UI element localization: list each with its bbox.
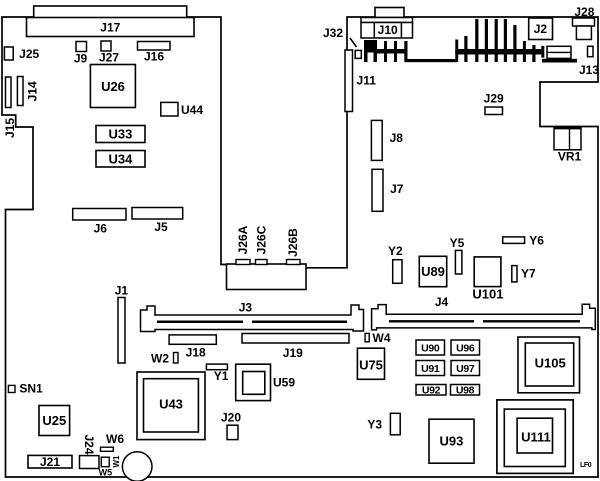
svg-text:U93: U93 <box>439 434 463 449</box>
svg-text:J6: J6 <box>94 222 108 236</box>
svg-text:J26C: J26C <box>255 225 269 254</box>
svg-text:Y1: Y1 <box>214 369 229 383</box>
svg-text:W2: W2 <box>151 351 169 365</box>
svg-text:U92: U92 <box>422 385 441 397</box>
svg-text:J2: J2 <box>534 22 548 36</box>
svg-text:J10: J10 <box>378 23 398 37</box>
svg-text:J24: J24 <box>82 434 96 454</box>
svg-text:J11: J11 <box>357 73 377 87</box>
svg-text:J1: J1 <box>115 283 129 297</box>
svg-text:J26B: J26B <box>286 228 300 257</box>
svg-text:U91: U91 <box>421 363 440 375</box>
svg-text:U59: U59 <box>273 376 295 390</box>
svg-text:U98: U98 <box>456 385 475 397</box>
svg-text:J13: J13 <box>579 63 599 77</box>
svg-text:J26A: J26A <box>236 225 250 254</box>
svg-text:U89: U89 <box>421 264 445 279</box>
svg-text:J15: J15 <box>3 118 17 138</box>
svg-text:U44: U44 <box>181 103 203 117</box>
svg-text:U111: U111 <box>521 429 551 444</box>
svg-text:Y6: Y6 <box>529 234 544 248</box>
svg-text:U33: U33 <box>108 127 132 142</box>
svg-text:W1: W1 <box>112 455 121 468</box>
svg-text:U75: U75 <box>359 358 383 373</box>
svg-text:J17: J17 <box>100 20 120 34</box>
svg-text:U26: U26 <box>101 79 125 94</box>
svg-text:J19: J19 <box>283 346 303 360</box>
svg-text:U105: U105 <box>535 355 566 370</box>
svg-text:J14: J14 <box>26 81 40 101</box>
svg-text:J21: J21 <box>40 455 60 469</box>
svg-text:J28: J28 <box>574 5 594 19</box>
svg-text:VR1: VR1 <box>558 150 582 164</box>
svg-text:J9: J9 <box>74 51 88 65</box>
svg-text:Y3: Y3 <box>367 418 382 432</box>
svg-text:J27: J27 <box>99 50 119 64</box>
svg-text:W5: W5 <box>99 468 113 478</box>
svg-text:J5: J5 <box>154 220 168 234</box>
svg-text:J16: J16 <box>144 49 164 63</box>
svg-text:U34: U34 <box>108 152 133 167</box>
svg-text:J8: J8 <box>390 131 404 145</box>
svg-text:W6: W6 <box>106 432 124 446</box>
svg-text:J18: J18 <box>186 346 206 360</box>
svg-text:LF0: LF0 <box>580 462 592 469</box>
svg-text:Y5: Y5 <box>450 236 465 250</box>
svg-text:Y2: Y2 <box>388 244 403 258</box>
svg-text:U101: U101 <box>472 286 503 301</box>
svg-text:U97: U97 <box>456 363 475 375</box>
svg-text:J7: J7 <box>390 182 404 196</box>
svg-text:U90: U90 <box>421 342 440 354</box>
svg-text:W4: W4 <box>373 331 391 345</box>
svg-text:J4: J4 <box>435 295 449 309</box>
svg-text:J20: J20 <box>221 411 241 425</box>
svg-text:U25: U25 <box>42 413 66 428</box>
svg-text:J3: J3 <box>239 300 253 314</box>
svg-text:J25: J25 <box>19 47 39 61</box>
svg-text:Y7: Y7 <box>521 266 536 280</box>
svg-text:U96: U96 <box>456 342 475 354</box>
svg-text:J29: J29 <box>484 91 504 105</box>
svg-text:U43: U43 <box>159 397 183 412</box>
svg-text:SN1: SN1 <box>19 382 43 396</box>
svg-text:J32: J32 <box>323 26 343 40</box>
